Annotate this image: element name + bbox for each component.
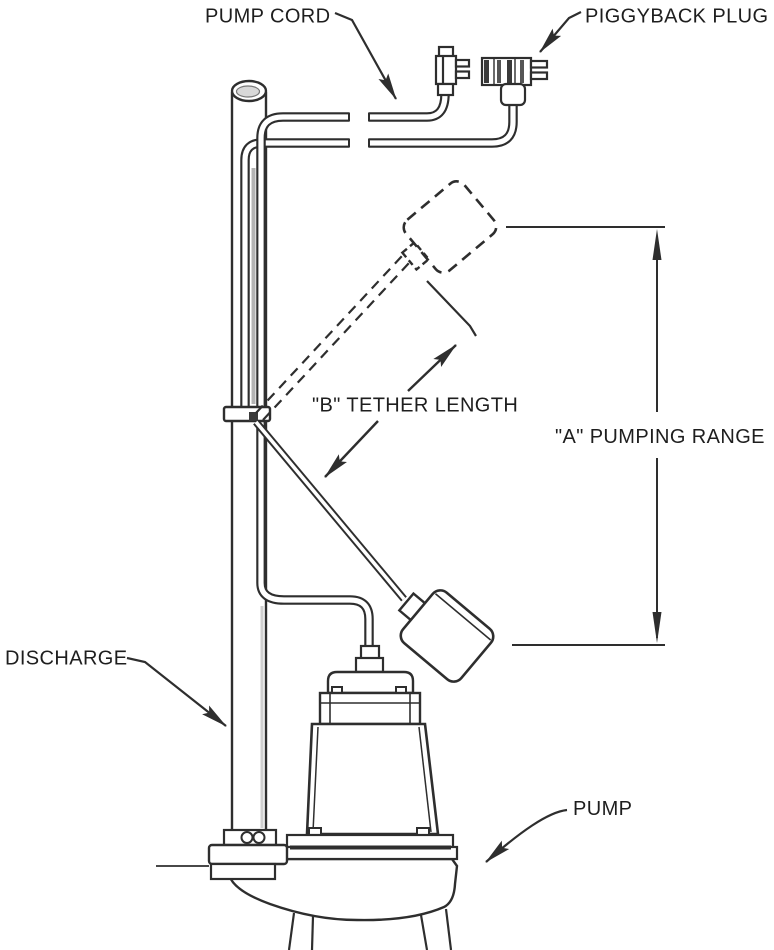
pipe-flange: [209, 845, 287, 864]
cord-connector-base: [356, 658, 383, 672]
pump-cord-leader: [335, 13, 396, 99]
piggyback-plug-label: PIGGYBACK PLUG: [585, 6, 768, 28]
pipe-flange-step: [211, 864, 275, 879]
tether-length-label: "B" TETHER LENGTH: [312, 395, 518, 417]
pump-cord-label: PUMP CORD: [205, 6, 330, 28]
bolt-band: [320, 693, 420, 724]
sump-pump-installation-diagram: PUMP CORD PIGGYBACK PLUG "B" TETHER LENG…: [0, 0, 774, 950]
plug-prong: [531, 61, 547, 68]
plug-prong: [531, 73, 547, 80]
pump-label: PUMP: [573, 798, 632, 820]
plug-prong: [456, 72, 469, 79]
float-switch-upper-position: [256, 177, 500, 420]
pump-cord: [261, 94, 445, 651]
float-switch-cord: [245, 103, 513, 409]
tether-upper-leader: [408, 345, 456, 391]
dimension-arrow-up: [653, 229, 662, 260]
diagram-canvas: PUMP CORD PIGGYBACK PLUG "B" TETHER LENG…: [0, 0, 774, 950]
float-body-dashed: [400, 177, 501, 276]
pumping-range-label: "A" PUMPING RANGE: [555, 426, 765, 448]
piggyback-plug: [482, 58, 547, 105]
plug-prong: [456, 60, 469, 67]
tether-corner-mark: [427, 281, 476, 336]
discharge-label: DISCHARGE: [5, 648, 128, 670]
piggyback-plug-leader: [540, 12, 581, 52]
dimension-arrow-down: [653, 612, 662, 643]
cord-break-caps: [349, 113, 369, 148]
pump-cord-plug: [436, 47, 469, 95]
discharge-leader: [127, 658, 226, 726]
seal-plate: [287, 835, 453, 847]
tether-lower-leader: [325, 421, 378, 477]
motor-housing: [307, 724, 438, 834]
pump-assembly: [156, 646, 457, 950]
pump-leader: [486, 810, 567, 862]
